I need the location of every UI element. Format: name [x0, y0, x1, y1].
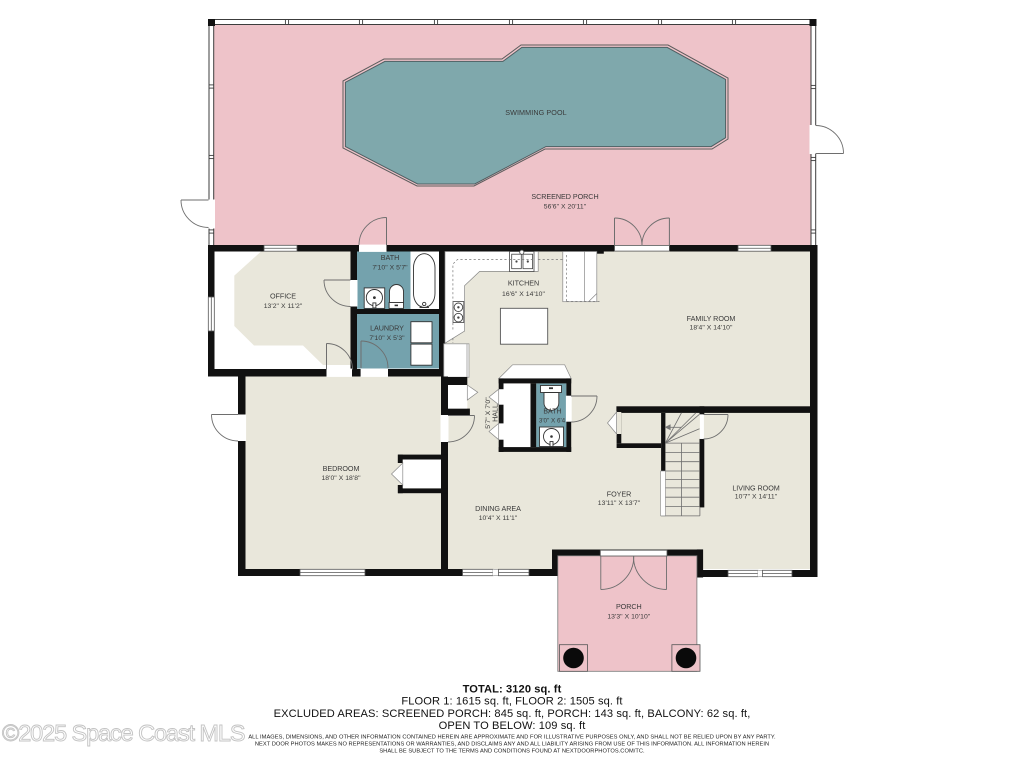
svg-text:7'10" X 5'3": 7'10" X 5'3" [369, 335, 405, 342]
svg-text:13'11" X 13'7": 13'11" X 13'7" [598, 500, 641, 507]
svg-text:LIVING ROOM: LIVING ROOM [732, 484, 779, 493]
svg-text:BATH: BATH [381, 253, 399, 262]
svg-text:FAMILY ROOM: FAMILY ROOM [687, 314, 736, 323]
svg-text:56'6" X 20'11": 56'6" X 20'11" [544, 204, 587, 211]
svg-text:©2025 Space Coast MLS: ©2025 Space Coast MLS [2, 720, 245, 746]
svg-text:SCREENED PORCH: SCREENED PORCH [531, 192, 598, 201]
svg-text:KITCHEN: KITCHEN [508, 279, 539, 288]
svg-text:PORCH: PORCH [616, 602, 642, 611]
svg-text:18'0" X 18'8": 18'0" X 18'8" [321, 475, 361, 482]
svg-text:DINING AREA: DINING AREA [475, 504, 521, 513]
svg-text:5'7" X 7'0": 5'7" X 7'0" [485, 397, 492, 429]
svg-text:NEXT DOOR PHOTOS MAKES NO REPR: NEXT DOOR PHOTOS MAKES NO REPRESENTATION… [255, 741, 769, 747]
svg-text:OPEN TO BELOW: 109 sq. ft: OPEN TO BELOW: 109 sq. ft [439, 720, 586, 732]
svg-text:BATH: BATH [543, 409, 561, 416]
svg-text:LAUNDRY: LAUNDRY [370, 324, 404, 333]
svg-text:18'4" X 14'10": 18'4" X 14'10" [690, 325, 733, 332]
svg-text:3'0" X 6'4: 3'0" X 6'4 [539, 418, 566, 425]
svg-text:13'3" X 10'10": 13'3" X 10'10" [607, 614, 650, 621]
svg-text:TOTAL: 3120 sq. ft: TOTAL: 3120 sq. ft [463, 684, 562, 696]
svg-text:FLOOR 1: 1615 sq. ft, FLOOR 2:: FLOOR 1: 1615 sq. ft, FLOOR 2: 1505 sq. … [401, 696, 622, 708]
svg-text:OFFICE: OFFICE [270, 292, 296, 301]
svg-text:BEDROOM: BEDROOM [323, 464, 360, 473]
svg-text:EXCLUDED AREAS: SCREENED PORCH: EXCLUDED AREAS: SCREENED PORCH: 845 sq. … [274, 708, 751, 720]
svg-text:10'7" X 14'11": 10'7" X 14'11" [735, 494, 778, 501]
svg-text:16'6" X 14'10": 16'6" X 14'10" [502, 291, 545, 298]
svg-text:ALL IMAGES, DIMENSIONS, AND OT: ALL IMAGES, DIMENSIONS, AND OTHER INFORM… [248, 734, 776, 740]
svg-text:7'10" X 5'7": 7'10" X 5'7" [372, 265, 408, 272]
svg-text:SWIMMING POOL: SWIMMING POOL [505, 108, 567, 117]
svg-text:10'4" X 11'1": 10'4" X 11'1" [479, 515, 518, 522]
svg-text:FOYER: FOYER [607, 490, 632, 499]
svg-text:13'2" X 11'2": 13'2" X 11'2" [264, 303, 303, 310]
svg-text:SHALL BE SUBJECT TO THE TERMS: SHALL BE SUBJECT TO THE TERMS AND CONDIT… [379, 748, 645, 754]
